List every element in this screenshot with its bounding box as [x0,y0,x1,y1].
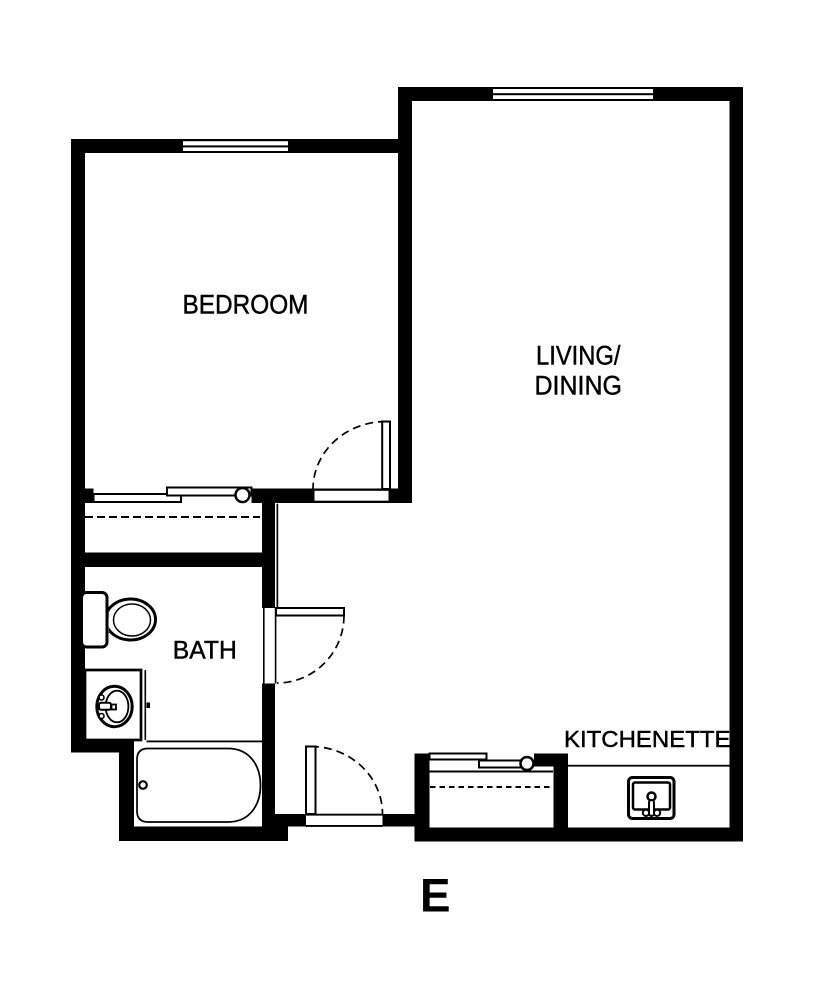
svg-text:BATH: BATH [173,637,237,665]
svg-text:DINING: DINING [535,371,623,401]
svg-text:E: E [420,870,451,923]
svg-text:KITCHENETTE: KITCHENETTE [564,726,731,752]
svg-text:BEDROOM: BEDROOM [183,290,309,320]
svg-text:LIVING/: LIVING/ [536,341,621,371]
